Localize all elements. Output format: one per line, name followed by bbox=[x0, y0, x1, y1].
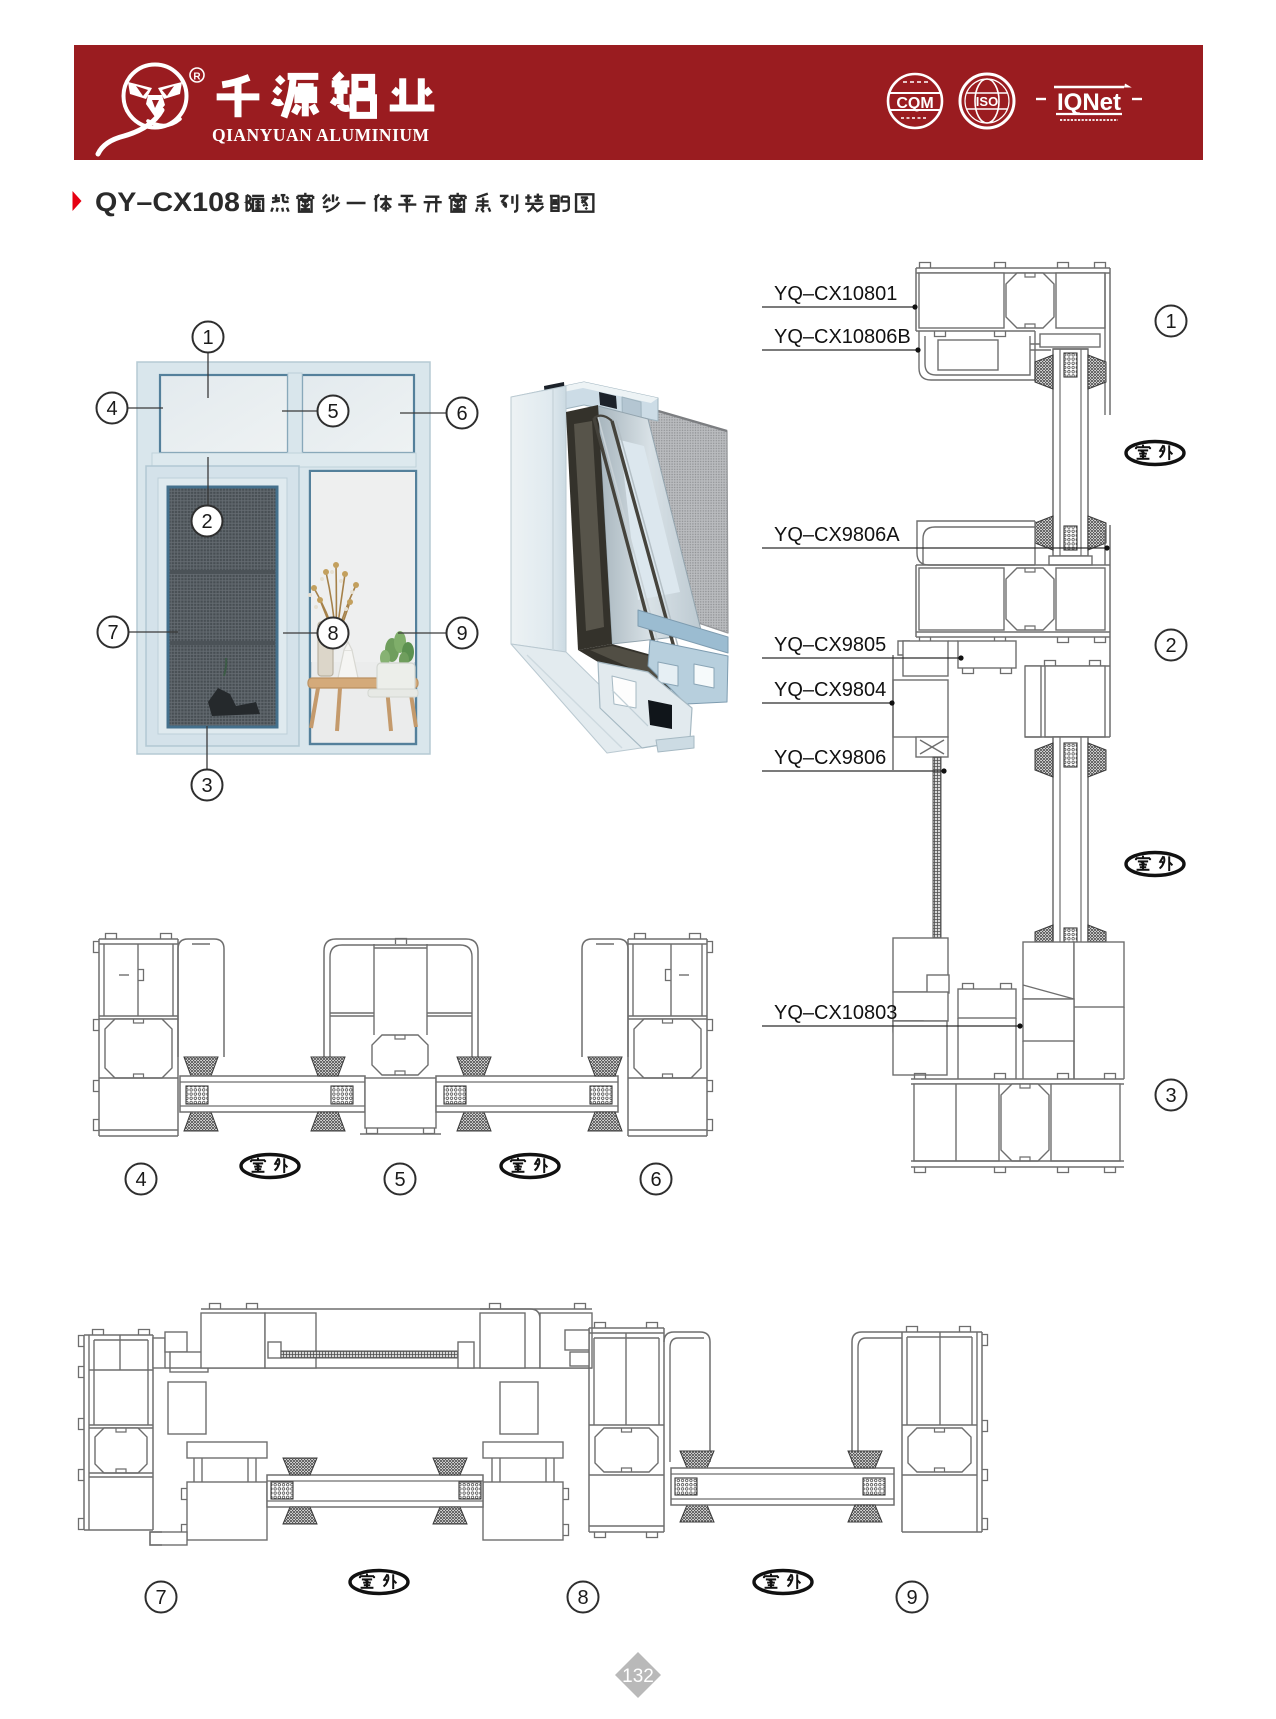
svg-text:132: 132 bbox=[622, 1666, 654, 1687]
